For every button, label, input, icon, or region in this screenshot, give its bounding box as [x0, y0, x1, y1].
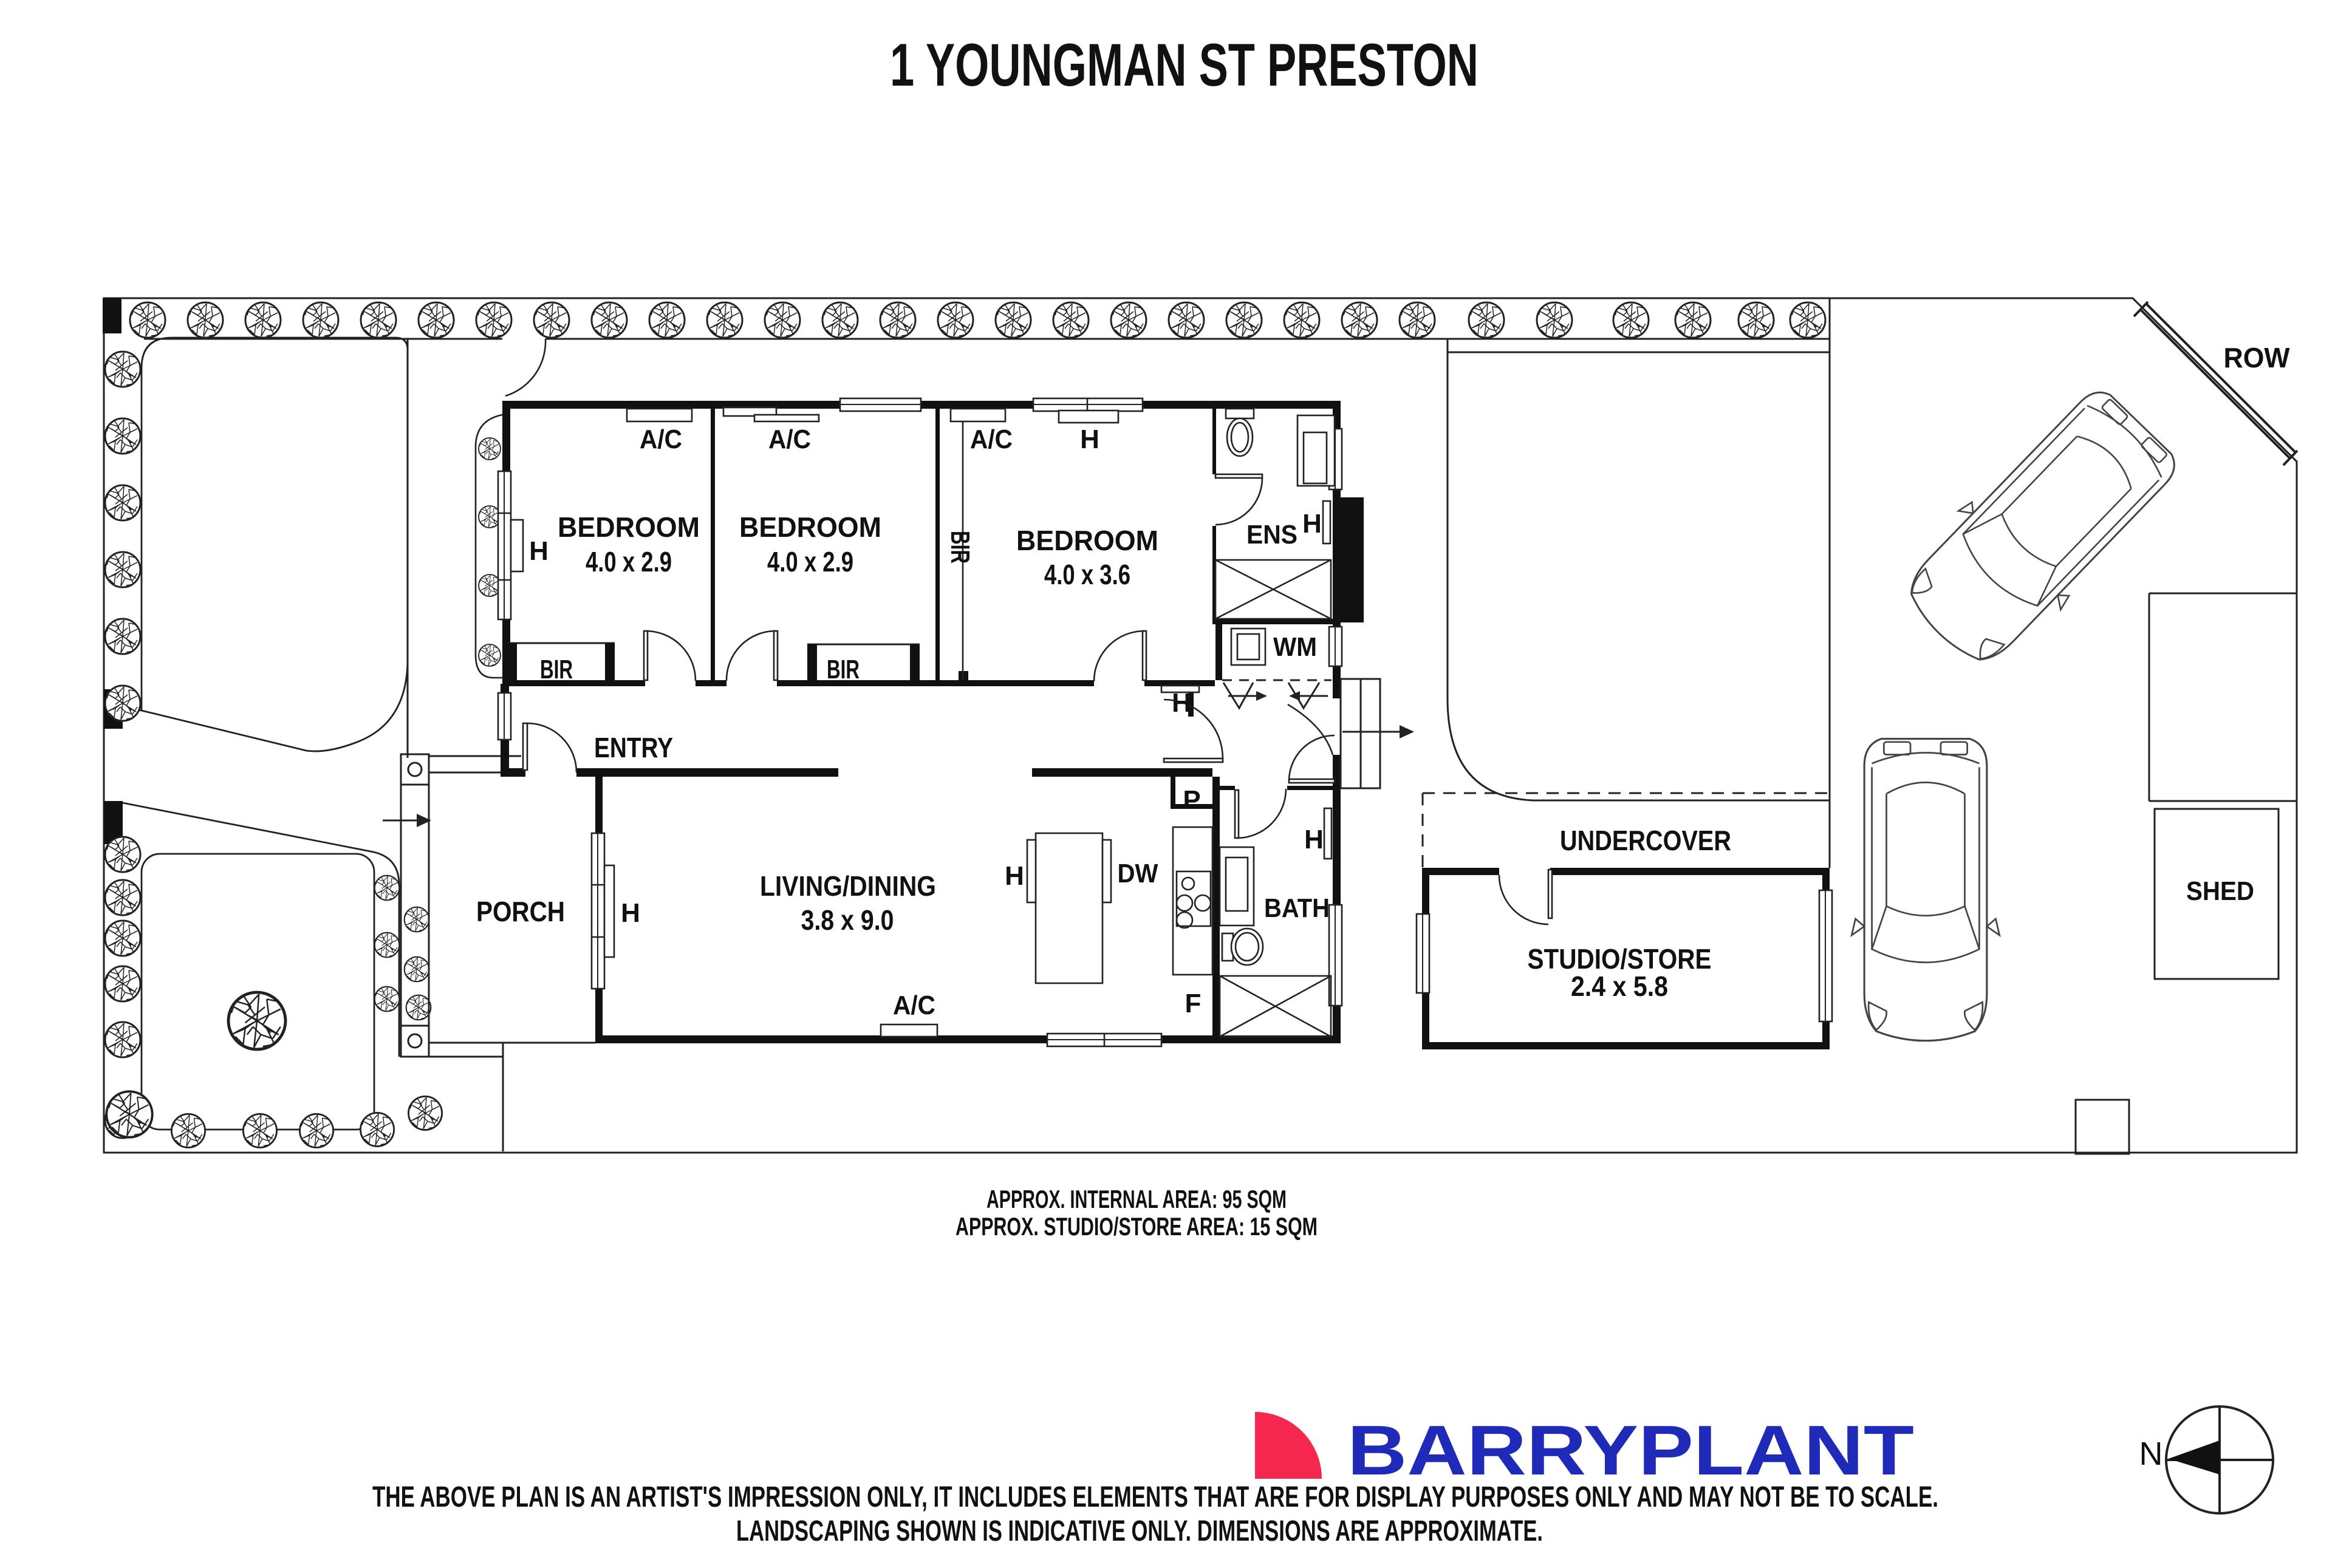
svg-text:H: H — [1005, 861, 1024, 891]
svg-text:BIR: BIR — [827, 655, 860, 684]
svg-text:A/C: A/C — [640, 424, 682, 454]
svg-text:1 YOUNGMAN ST PRESTON: 1 YOUNGMAN ST PRESTON — [890, 31, 1479, 98]
svg-text:DW: DW — [1118, 859, 1158, 888]
svg-text:F: F — [1185, 989, 1202, 1018]
svg-text:BIR: BIR — [945, 531, 975, 564]
svg-text:H: H — [1080, 424, 1099, 454]
svg-text:A/C: A/C — [768, 424, 811, 454]
svg-text:UNDERCOVER: UNDERCOVER — [1560, 825, 1731, 856]
svg-text:ROW: ROW — [2224, 342, 2291, 373]
svg-text:H: H — [1172, 688, 1191, 718]
svg-text:BEDROOM: BEDROOM — [1016, 525, 1158, 556]
svg-text:4.0 x 2.9: 4.0 x 2.9 — [767, 546, 853, 578]
svg-text:H: H — [621, 898, 640, 928]
svg-text:H: H — [1304, 825, 1324, 854]
svg-text:3.8 x 9.0: 3.8 x 9.0 — [801, 904, 894, 936]
svg-text:SHED: SHED — [2186, 876, 2254, 906]
svg-text:BATH: BATH — [1264, 893, 1330, 923]
svg-text:WM: WM — [1273, 632, 1317, 662]
svg-text:ENTRY: ENTRY — [594, 732, 673, 763]
svg-text:A/C: A/C — [893, 990, 935, 1020]
svg-text:2.4 x 5.8: 2.4 x 5.8 — [1571, 970, 1668, 1002]
svg-text:H: H — [1302, 509, 1322, 539]
svg-text:APPROX. STUDIO/STORE AREA: 15: APPROX. STUDIO/STORE AREA: 15 SQM — [955, 1212, 1318, 1241]
svg-text:4.0 x 2.9: 4.0 x 2.9 — [586, 546, 672, 578]
svg-text:PORCH: PORCH — [476, 896, 565, 927]
svg-text:BARRYPLANT: BARRYPLANT — [1347, 1411, 1914, 1490]
svg-text:LANDSCAPING SHOWN IS INDICATIV: LANDSCAPING SHOWN IS INDICATIVE ONLY. DI… — [736, 1515, 1543, 1547]
svg-text:THE ABOVE PLAN IS AN ARTIST'S: THE ABOVE PLAN IS AN ARTIST'S IMPRESSION… — [372, 1481, 1938, 1513]
svg-text:ENS: ENS — [1246, 520, 1297, 550]
svg-text:N: N — [2139, 1436, 2163, 1472]
svg-text:LIVING/DINING: LIVING/DINING — [760, 870, 936, 902]
svg-text:P: P — [1183, 785, 1200, 815]
svg-text:H: H — [529, 536, 549, 566]
svg-text:BIR: BIR — [540, 655, 573, 684]
svg-text:APPROX. INTERNAL AREA: 95 SQM: APPROX. INTERNAL AREA: 95 SQM — [986, 1185, 1287, 1213]
svg-text:A/C: A/C — [970, 424, 1013, 454]
svg-text:BEDROOM: BEDROOM — [739, 511, 881, 543]
svg-text:BEDROOM: BEDROOM — [558, 511, 700, 543]
svg-text:4.0 x 3.6: 4.0 x 3.6 — [1044, 559, 1130, 590]
